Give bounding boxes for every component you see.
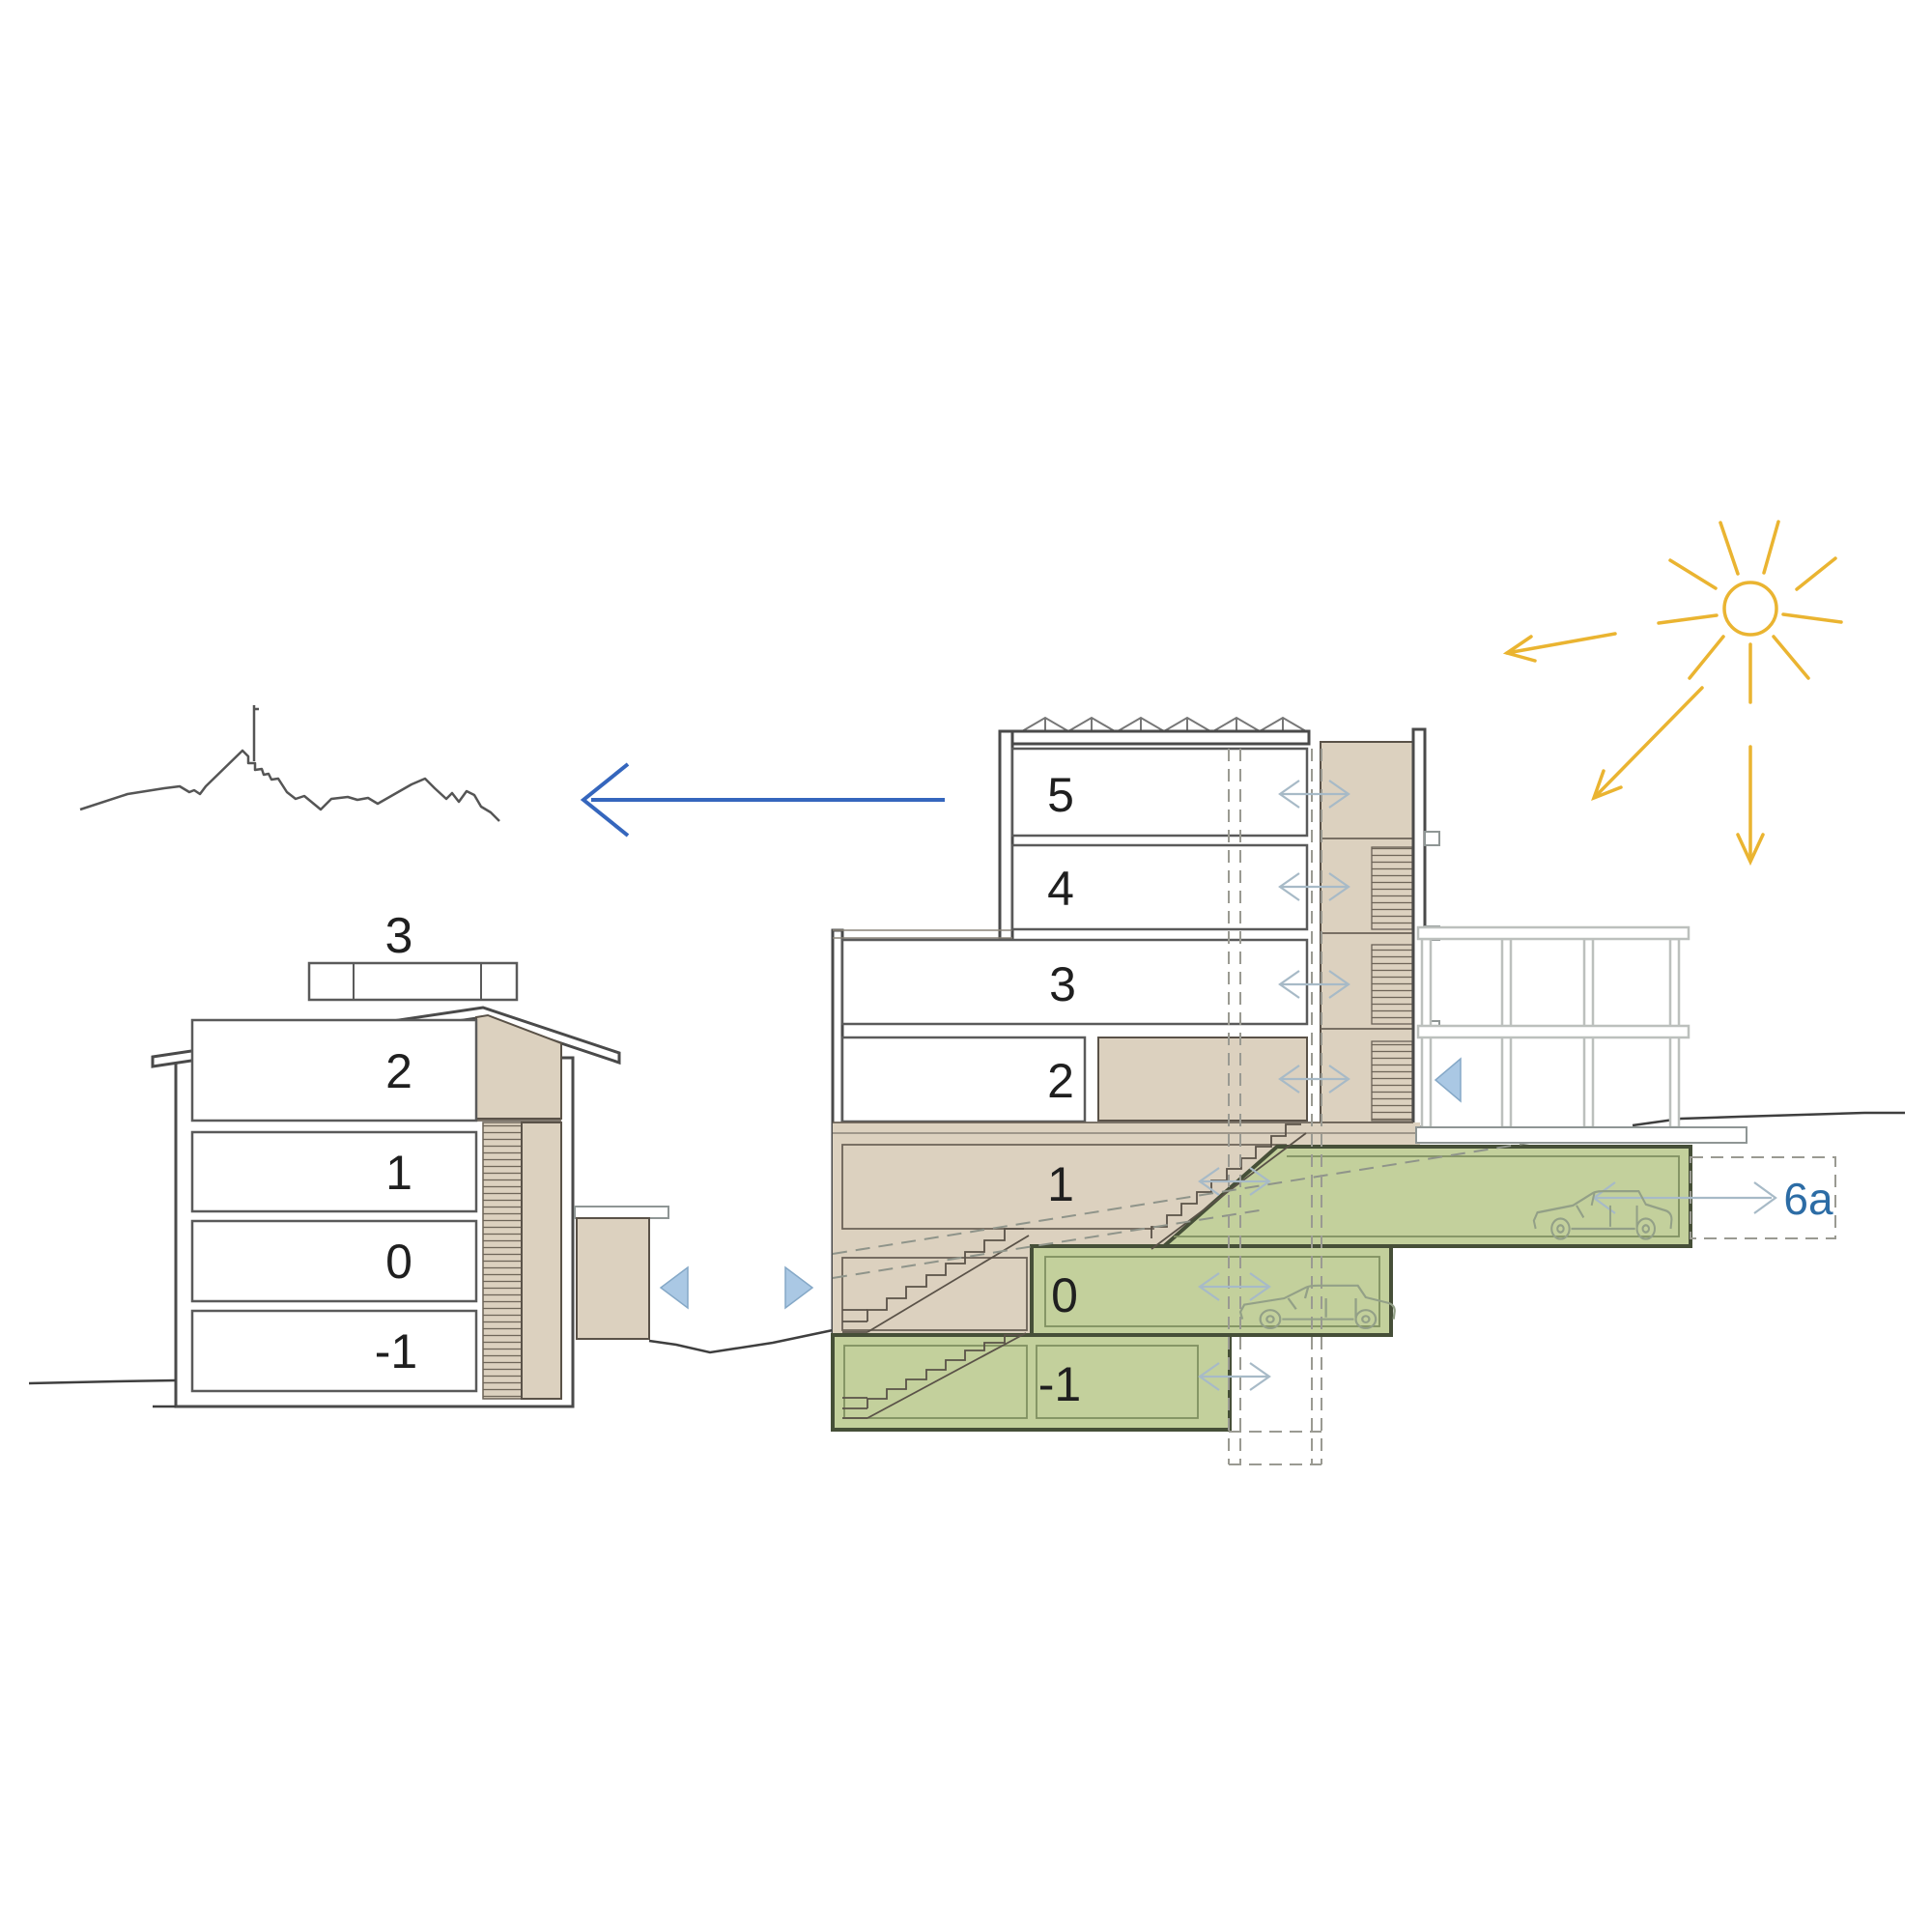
right-floor-4-label: 4: [1047, 862, 1074, 916]
right-building-sawtooth-roof: [1022, 718, 1306, 731]
right-floor-minus1-label: -1: [1038, 1357, 1081, 1411]
right-floor-2-tan-zone: [1098, 1037, 1307, 1121]
right-floor-3-label: 3: [1049, 957, 1076, 1011]
pergola-mid-beam: [1418, 1026, 1689, 1037]
mountain-skyline-icon: [80, 705, 499, 821]
right-stair-hatch-2: [1372, 1041, 1412, 1121]
sun-ray-arrow-down-icon: [1738, 747, 1763, 862]
left-building-roof-box: [309, 963, 517, 1000]
left-building-stair-shaft: [522, 1122, 561, 1399]
exit-6a-label: 6a: [1783, 1174, 1833, 1224]
right-stair-hatch-4: [1372, 847, 1412, 929]
sun-ray-arrow-southwest-icon: [1594, 688, 1702, 798]
right-floor-5-label: 5: [1047, 768, 1074, 822]
section-diagram-canvas: 3 2 1 0 -1 5 4 3 2 1 0 -1 6a: [0, 0, 1932, 1932]
section-diagram: 3 2 1 0 -1 5 4 3 2 1 0 -1 6a: [0, 0, 1932, 1932]
left-floor-2-label: 2: [385, 1044, 412, 1098]
left-floor-2-room: [192, 1020, 476, 1121]
left-floor-1-room: [192, 1132, 476, 1211]
right-building-upper-left-wall: [1000, 731, 1012, 940]
left-floor-1-label: 1: [385, 1146, 412, 1200]
left-floor-0-label: 0: [385, 1235, 412, 1289]
sun-icon: [1659, 522, 1841, 702]
triangle-marker-right-icon: [785, 1267, 812, 1308]
left-floor-0-room: [192, 1221, 476, 1301]
left-building-stair-hatch: [483, 1122, 522, 1399]
left-floor-minus1-label: -1: [375, 1324, 417, 1378]
right-stair-hatch-3: [1372, 945, 1412, 1024]
right-floor-0-label: 0: [1051, 1268, 1078, 1322]
pergola-structure: [1416, 927, 1747, 1143]
right-floor-1-label: 1: [1047, 1157, 1074, 1211]
left-roof-label: 3: [385, 908, 413, 964]
pergola-top-beam: [1418, 927, 1689, 939]
west-direction-arrow-icon: [583, 764, 945, 836]
right-building-parapet: [1000, 731, 1309, 744]
pergola-base-slab: [1416, 1127, 1747, 1143]
green-parking-level-0: [1032, 1246, 1391, 1335]
left-annex-slab: [575, 1207, 668, 1218]
right-floor-2-label: 2: [1047, 1054, 1074, 1108]
green-parking-level-minus1: [833, 1335, 1230, 1430]
triangle-marker-left-icon: [661, 1267, 688, 1308]
triangle-marker-pergola-icon: [1435, 1059, 1461, 1101]
right-building-section: [833, 718, 1690, 1464]
sun-ray-arrow-west-icon: [1507, 634, 1615, 661]
left-floor-minus1-room: [192, 1311, 476, 1391]
left-annex-volume: [577, 1218, 649, 1339]
